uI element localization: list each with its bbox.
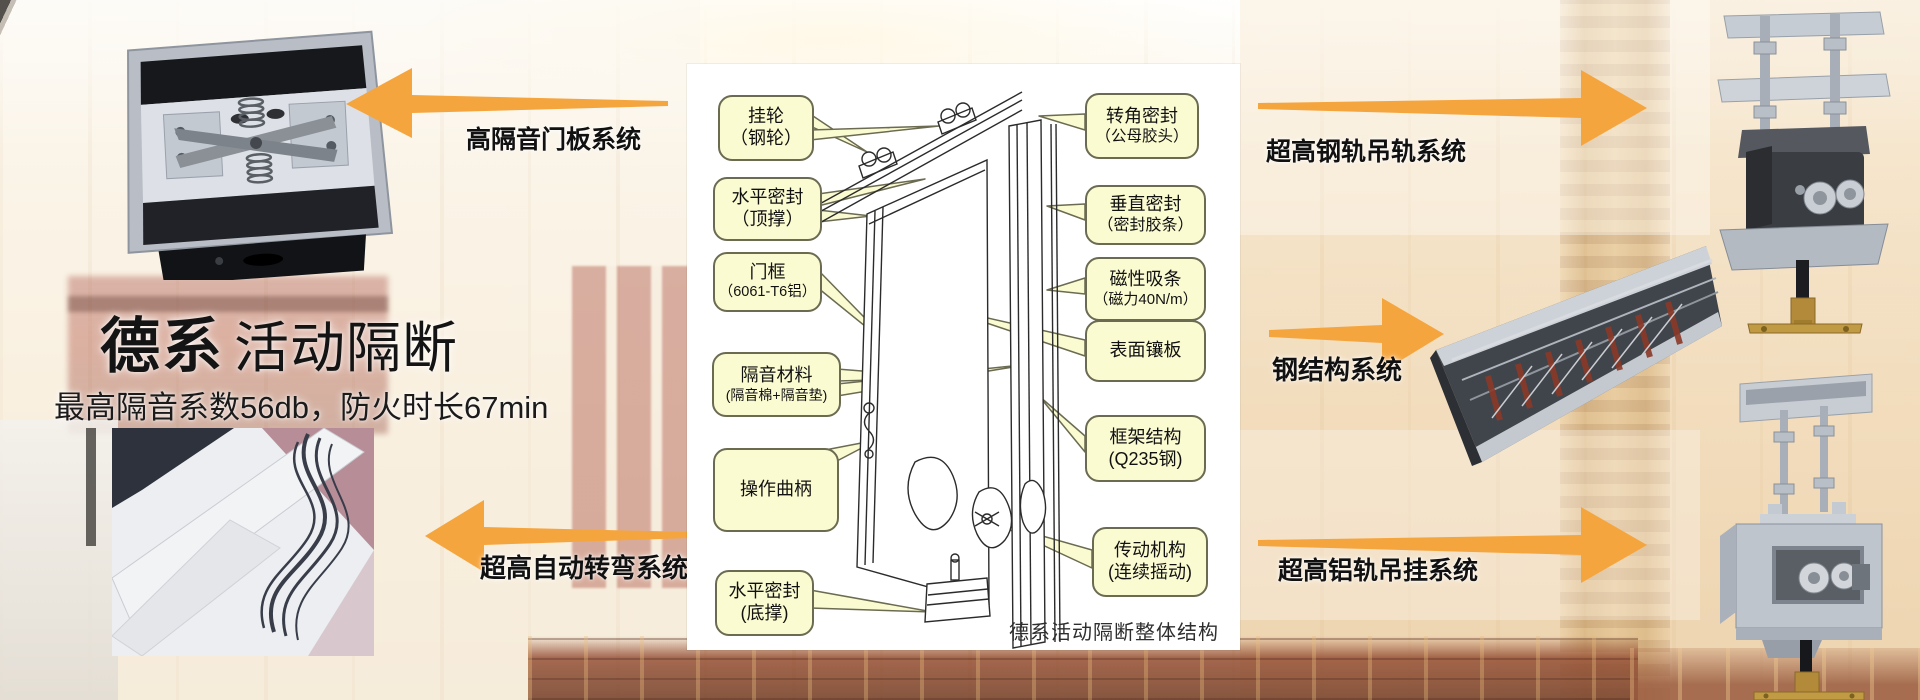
label-auto-turn-system: 超高自动转弯系统 — [480, 548, 688, 585]
callout-line: (Q235钢) — [1108, 449, 1182, 471]
steel-rail-hanger-photo — [1702, 2, 1907, 334]
callout-line: (底撑) — [741, 603, 789, 625]
callout-corner-seal: 转角密封 （公母胶头） — [1085, 93, 1199, 159]
slide-movable-partition: 高隔音门板系统 超高自动转弯系统 超高钢轨吊轨系统 钢结构系统 超高铝轨吊挂系统… — [0, 0, 1920, 700]
callout-door-frame: 门框 （6061-T6铝） — [713, 252, 822, 312]
callout-vertical-seal: 垂直密封 （密封胶条） — [1085, 185, 1206, 245]
callout-hanger-wheel: 挂轮 （钢轮） — [718, 95, 814, 161]
callout-sound-insulation-material: 隔音材料 (隔音棉+隔音垫) — [712, 352, 841, 417]
callout-line: 水平密封 — [732, 187, 804, 209]
structure-diagram-panel: 挂轮 （钢轮） 水平密封 （顶撑） 门框 （6061-T6铝） 隔音材料 (隔音… — [687, 64, 1240, 650]
callout-line: (连续摇动) — [1108, 562, 1192, 584]
callout-horizontal-seal-top: 水平密封 （顶撑） — [713, 177, 822, 241]
callout-line: 转角密封 — [1106, 106, 1178, 128]
callout-line: 垂直密封 — [1110, 194, 1182, 216]
label-steel-rail-system: 超高钢轨吊轨系统 — [1266, 132, 1466, 168]
steel-structure-photo — [1422, 230, 1724, 468]
callout-line: 传动机构 — [1114, 540, 1186, 562]
door-top-mechanism-photo — [95, 2, 417, 280]
curved-track-photo — [112, 428, 374, 656]
left-floor-area — [0, 420, 118, 700]
label-door-panel-system: 高隔音门板系统 — [466, 120, 641, 156]
callout-line: 磁性吸条 — [1110, 269, 1182, 291]
aluminum-rail-hanger-photo — [1702, 366, 1910, 700]
callout-line: 水平密封 — [729, 581, 801, 603]
callout-line: 框架结构 — [1110, 427, 1182, 449]
callout-operating-crank: 操作曲柄 — [713, 448, 839, 532]
callout-line: （6061-T6铝） — [719, 284, 817, 302]
callout-transmission-mechanism: 传动机构 (连续摇动) — [1092, 527, 1208, 597]
label-steel-structure-system: 钢结构系统 — [1272, 350, 1402, 387]
page-subtitle: 最高隔音系数56db，防火时长67min — [54, 382, 548, 427]
callout-horizontal-seal-bottom: 水平密封 (底撑) — [715, 570, 814, 636]
label-aluminum-rail-system: 超高铝轨吊挂系统 — [1278, 551, 1478, 587]
callout-line: 表面镶板 — [1110, 340, 1182, 362]
callout-line: (隔音棉+隔音垫) — [726, 387, 828, 404]
callout-surface-panel: 表面镶板 — [1085, 320, 1206, 382]
callout-line: 隔音材料 — [741, 365, 813, 387]
callout-line: （密封胶条） — [1097, 216, 1193, 236]
dark-panel-edge — [86, 428, 96, 546]
callout-line: 操作曲柄 — [740, 479, 812, 501]
callout-line: （钢轮） — [730, 128, 802, 150]
callout-line: （公母胶头） — [1095, 128, 1188, 147]
product-type-name: 活动隔断 — [234, 317, 458, 379]
callout-line: 门框 — [750, 262, 786, 284]
callout-line: （顶撑） — [732, 209, 804, 231]
product-series-name: 德系 — [100, 313, 224, 380]
page-title: 德系活动隔断 — [100, 298, 458, 385]
callout-magnetic-strip: 磁性吸条 （磁力40N/m） — [1085, 257, 1206, 321]
dark-corner-edge — [0, 0, 80, 100]
diagram-caption: 德系活动隔断整体结构 — [1009, 616, 1239, 645]
callout-line: 挂轮 — [748, 106, 784, 128]
callout-frame-structure: 框架结构 (Q235钢) — [1085, 415, 1206, 482]
callout-line: （磁力40N/m） — [1093, 291, 1197, 309]
